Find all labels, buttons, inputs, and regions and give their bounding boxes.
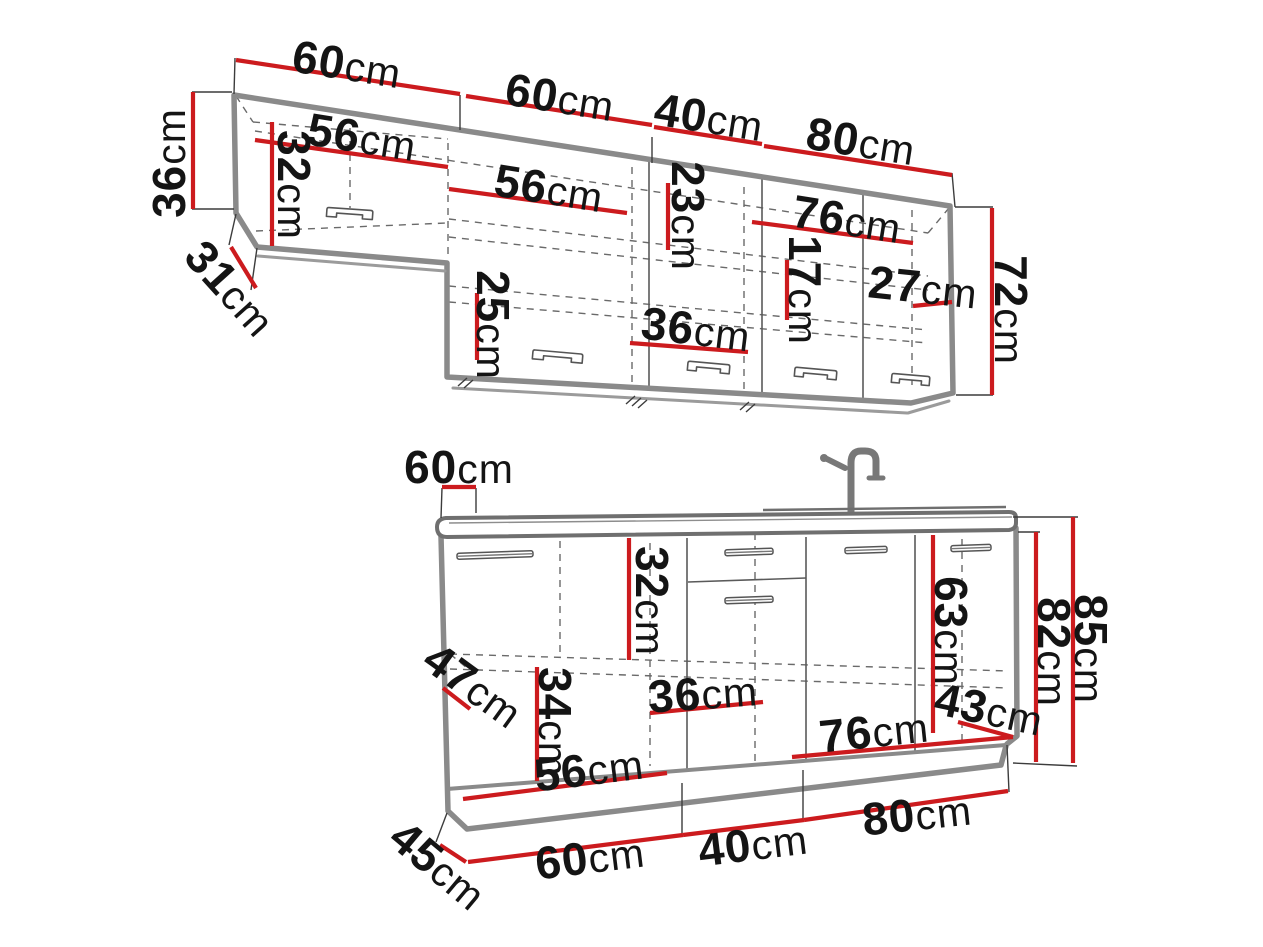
- handle-icon: [725, 596, 773, 604]
- dim-label-base-60: 60cm: [532, 825, 647, 890]
- dim-label-base-80: 80cm: [860, 782, 975, 845]
- dim-label-base-40: 40cm: [695, 812, 810, 877]
- base-cabinet-view: 60cm 32cm 63cm 82cm 85cm 47cm 34cm 36cm …: [380, 441, 1117, 920]
- sink-rim: [763, 507, 1006, 510]
- dim-label-upper-72: 72cm: [985, 255, 1037, 365]
- dim-label-upper-60b: 60cm: [502, 63, 619, 132]
- dim-label-base-32: 32cm: [626, 546, 678, 656]
- dim-label-upper-80: 80cm: [803, 107, 920, 176]
- handle-icon: [725, 548, 773, 556]
- handle-icon: [951, 544, 991, 551]
- upper-cabinet-view: 60cm 60cm 40cm 80cm 36cm 31cm 56cm 32cm …: [143, 30, 1037, 413]
- dim-label-upper-23: 23cm: [662, 161, 714, 271]
- kitchen-dimension-diagram: 60cm 60cm 40cm 80cm 36cm 31cm 56cm 32cm …: [0, 0, 1263, 947]
- dim-label-base-60depth: 60cm: [404, 441, 514, 493]
- dim-label-upper-40: 40cm: [651, 83, 768, 152]
- dim-label-upper-36: 36cm: [143, 108, 195, 218]
- diagram-canvas: 60cm 60cm 40cm 80cm 36cm 31cm 56cm 32cm …: [0, 0, 1263, 947]
- handle-icon: [845, 546, 887, 553]
- dim-label-upper-32: 32cm: [268, 130, 320, 240]
- dim-label-base-85: 85cm: [1065, 594, 1117, 704]
- dim-label-base-36: 36cm: [646, 663, 759, 723]
- dim-label-upper-17: 17cm: [779, 235, 831, 345]
- dim-label-upper-25: 25cm: [467, 270, 519, 380]
- dim-label-upper-60a: 60cm: [289, 30, 406, 99]
- dim-label-base-63: 63cm: [925, 576, 977, 686]
